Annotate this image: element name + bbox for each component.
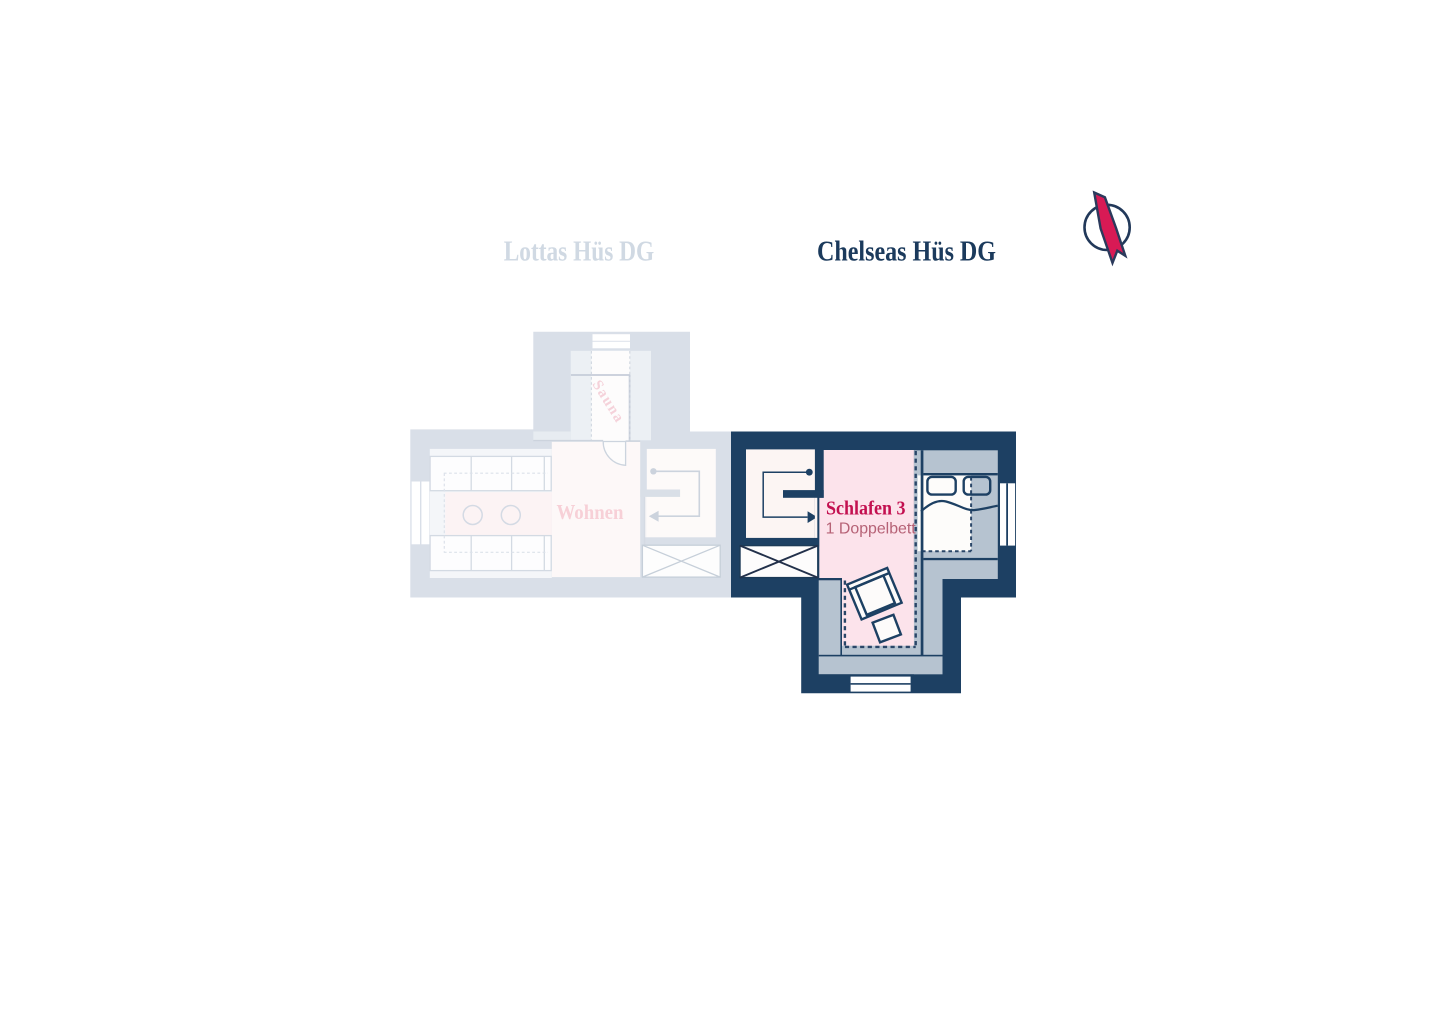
svg-text:Chelseas Hüs DG: Chelseas Hüs DG xyxy=(817,236,996,268)
svg-text:Lottas Hüs DG: Lottas Hüs DG xyxy=(504,236,655,268)
svg-text:Wohnen: Wohnen xyxy=(557,500,624,524)
svg-text:1 Doppelbett: 1 Doppelbett xyxy=(826,520,917,537)
svg-text:Schlafen 3: Schlafen 3 xyxy=(826,499,906,520)
